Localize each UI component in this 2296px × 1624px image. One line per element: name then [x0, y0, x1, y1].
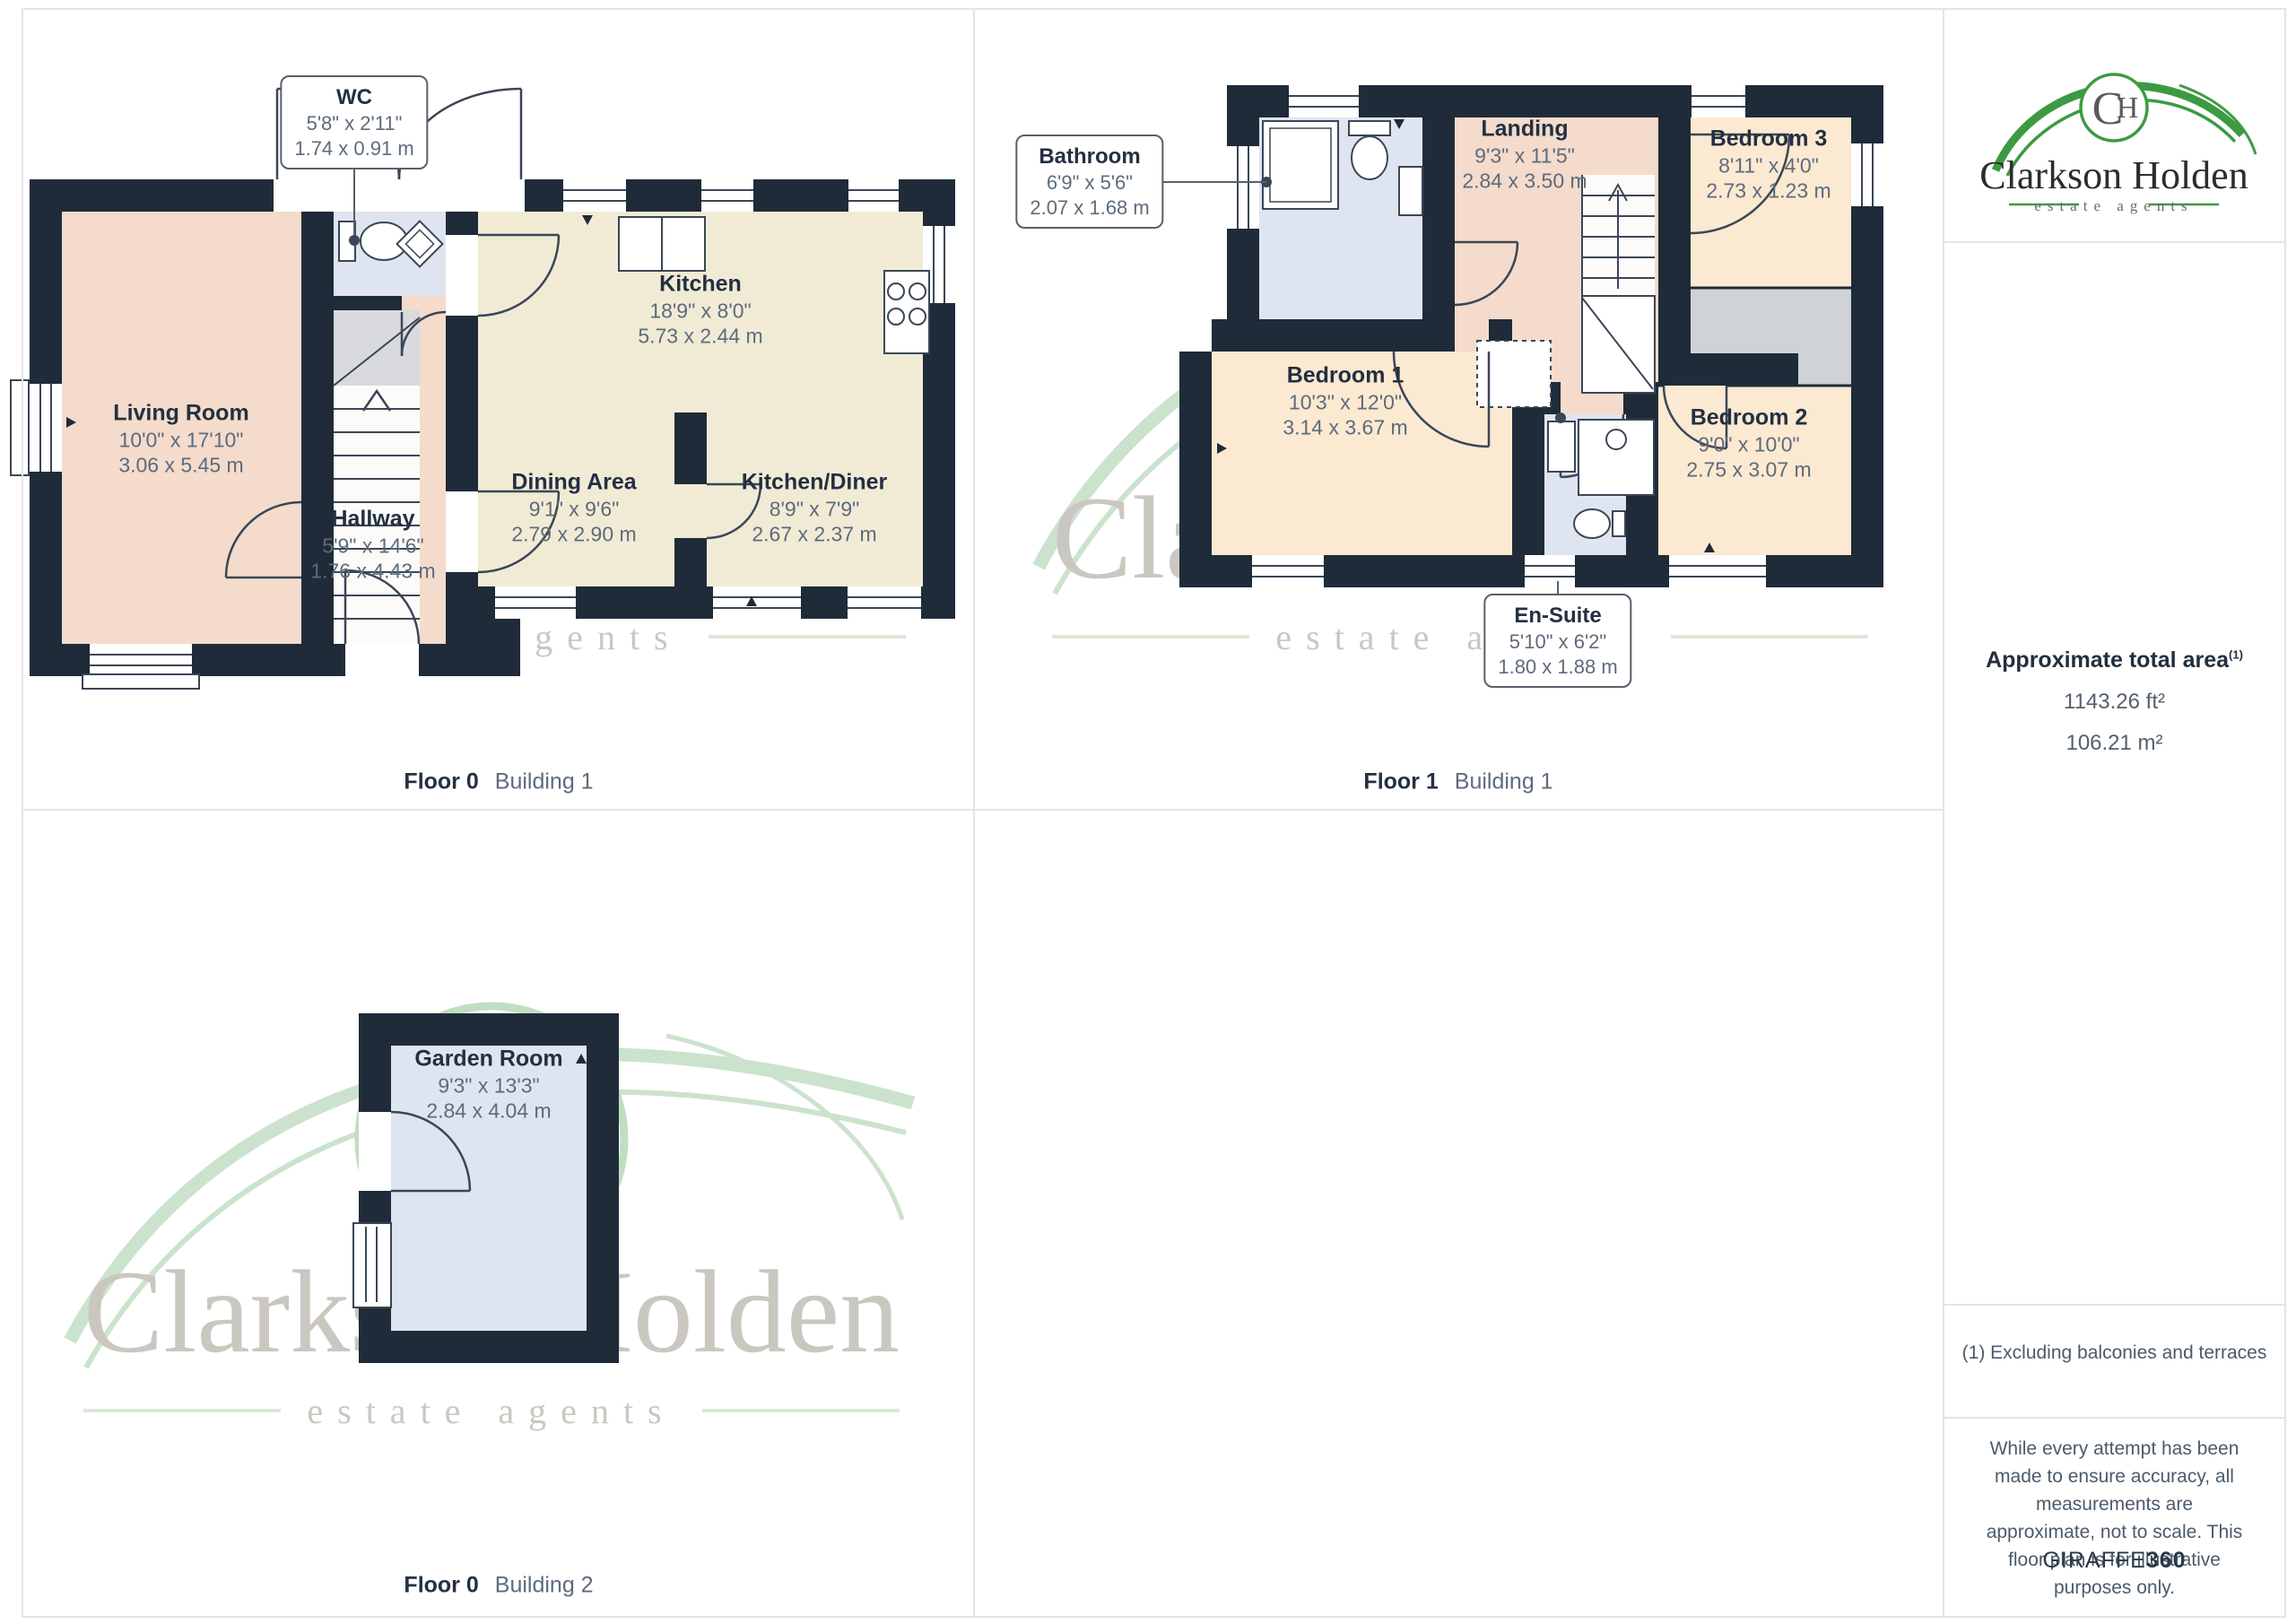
caption-floor: Floor 0 — [404, 1573, 478, 1599]
caption-building: Building 2 — [495, 1573, 594, 1599]
caption-floor1-building1: Floor 1 Building 1 — [1363, 769, 1552, 795]
room-bedroom-1 — [1212, 352, 1512, 555]
total-area-section: Approximate total area(1) 1143.26 ft² 10… — [1944, 647, 2285, 756]
plan-floor0-building2 — [353, 1013, 619, 1363]
callout-bathroom: Bathroom 6'9" x 5'6" 2.07 x 1.68 m — [1015, 135, 1163, 229]
total-area-sqft: 1143.26 ft² — [1944, 690, 2285, 715]
room-bedroom-3 — [1691, 117, 1851, 288]
logo-subtitle: estate agents — [2034, 197, 2193, 214]
room-name: En-Suite — [1498, 602, 1617, 630]
plan-floor1-building1 — [1161, 85, 1883, 595]
room-bedroom-2 — [1658, 386, 1851, 555]
caption-building: Building 1 — [495, 769, 594, 795]
total-area-title-text: Approximate total area — [1986, 647, 2229, 673]
logo-monogram-h: H — [2117, 91, 2139, 125]
giraffe360-suffix: 360 — [2146, 1548, 2187, 1573]
caption-floor: Floor 0 — [404, 769, 478, 795]
room-dim-metric: 2.07 x 1.68 m — [1030, 195, 1149, 221]
area-footnote: (1) Excluding balconies and terraces — [1944, 1342, 2285, 1364]
caption-floor0-building1: Floor 0 Building 1 — [404, 769, 593, 795]
floorplan-page: C H Clarkson Holden estate agents C H Cl… — [0, 0, 2296, 1624]
giraffe360-name: GIRAFFE — [2042, 1548, 2145, 1573]
room-living-room — [62, 212, 301, 644]
room-dim-imperial: 5'8" x 2'11" — [294, 111, 413, 136]
total-area-footnote-marker: (1) — [2229, 648, 2243, 662]
room-name: WC — [294, 83, 413, 111]
door-hinge-dot — [1555, 413, 1566, 423]
watermark-subtitle: estate agents — [307, 1391, 675, 1431]
caption-floor: Floor 1 — [1363, 769, 1438, 795]
caption-building: Building 1 — [1455, 769, 1553, 795]
total-area-title: Approximate total area(1) — [1944, 647, 2285, 673]
room-dim-imperial: 6'9" x 5'6" — [1030, 170, 1149, 195]
plan-floor0-building1 — [11, 89, 955, 689]
room-garden-room — [391, 1046, 587, 1331]
callout-en-suite: En-Suite 5'10" x 6'2" 1.80 x 1.88 m — [1483, 594, 1631, 688]
callout-wc: WC 5'8" x 2'11" 1.74 x 0.91 m — [280, 75, 428, 169]
floorplan-drawing: C H Clarkson Holden estate agents C H Cl… — [0, 0, 2296, 1624]
agency-logo: C H Clarkson Holden estate agents — [1979, 74, 2256, 214]
room-dim-metric: 1.74 x 0.91 m — [294, 136, 413, 161]
caption-floor0-building2: Floor 0 Building 2 — [404, 1573, 593, 1599]
room-dim-imperial: 5'10" x 6'2" — [1498, 630, 1617, 655]
disclaimer-text: While every attempt has been made to ens… — [1979, 1435, 2249, 1602]
logo-title: Clarkson Holden — [1979, 153, 2248, 197]
room-name: Bathroom — [1030, 143, 1149, 170]
stairs — [334, 310, 420, 644]
room-dim-metric: 1.80 x 1.88 m — [1498, 655, 1617, 680]
callout-anchor-dot-wc — [349, 235, 360, 246]
windows — [353, 1223, 391, 1307]
giraffe360-logo: GIRAFFE360 — [1944, 1548, 2285, 1574]
total-area-sqm: 106.21 m² — [1944, 731, 2285, 756]
